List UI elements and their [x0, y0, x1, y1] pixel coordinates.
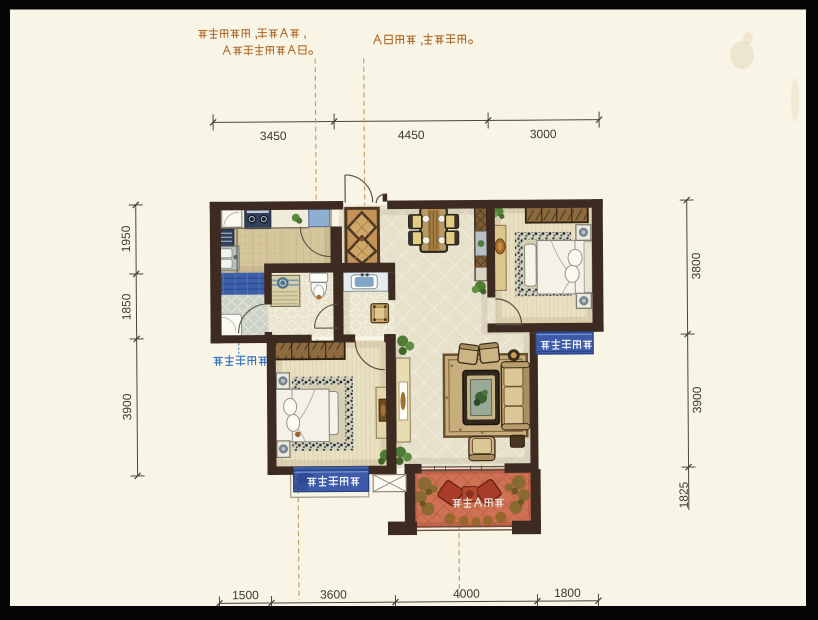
svg-text:1825: 1825 [677, 481, 691, 508]
svg-text:1500: 1500 [232, 588, 259, 602]
svg-text:3450: 3450 [260, 129, 287, 143]
svg-text:4450: 4450 [398, 128, 425, 142]
svg-text:3800: 3800 [689, 252, 703, 279]
svg-text:1850: 1850 [119, 293, 133, 320]
svg-text:1950: 1950 [119, 225, 133, 252]
svg-text:4000: 4000 [453, 587, 480, 601]
svg-text:1800: 1800 [554, 586, 581, 600]
svg-text:3900: 3900 [690, 386, 704, 413]
svg-text:3600: 3600 [320, 587, 347, 601]
svg-text:3000: 3000 [530, 127, 557, 141]
svg-text:3900: 3900 [120, 393, 134, 420]
